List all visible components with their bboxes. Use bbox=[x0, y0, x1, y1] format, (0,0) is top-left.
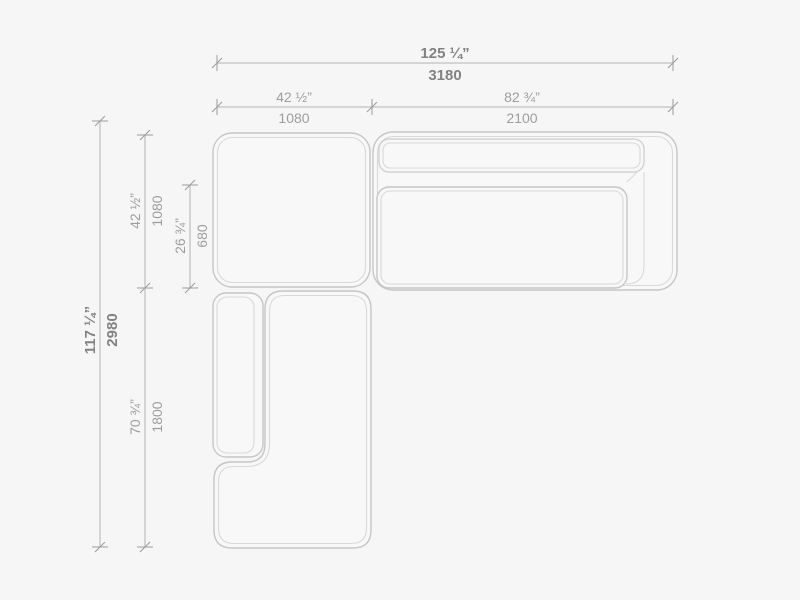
dimension-label-mm: 1080 bbox=[278, 110, 309, 126]
dimension-label-inches: 42 ½” bbox=[276, 89, 312, 105]
dimension-label-inches: 117 ¼” bbox=[82, 306, 99, 354]
dimension-label-inches: 125 ¼” bbox=[420, 45, 469, 62]
canvas-background bbox=[0, 0, 800, 600]
dimension-label-mm: 1080 bbox=[149, 195, 165, 226]
dimension-label-inches: 42 ½” bbox=[127, 193, 143, 229]
dimension-label-mm: 2980 bbox=[104, 313, 121, 346]
technical-drawing-canvas: 125 ¼” 3180 42 ½” 1080 82 ¾” 2100 117 ¼”… bbox=[0, 0, 800, 600]
sofa-backrest bbox=[379, 139, 644, 172]
chaise-armrest bbox=[213, 293, 263, 457]
dimension-label-mm: 3180 bbox=[428, 67, 461, 84]
dimension-drawing-svg: 125 ¼” 3180 42 ½” 1080 82 ¾” 2100 117 ¼”… bbox=[0, 0, 800, 600]
dimension-label-mm: 680 bbox=[194, 224, 210, 248]
dimension-label-inches: 26 ¾” bbox=[172, 218, 188, 254]
ottoman-outline bbox=[213, 133, 370, 287]
dimension-label-mm: 1800 bbox=[149, 401, 165, 432]
dimension-label-inches: 70 ¾” bbox=[127, 399, 143, 435]
dimension-label-mm: 2100 bbox=[506, 110, 537, 126]
sofa-seat-cushion bbox=[377, 187, 627, 288]
dimension-label-inches: 82 ¾” bbox=[504, 89, 540, 105]
